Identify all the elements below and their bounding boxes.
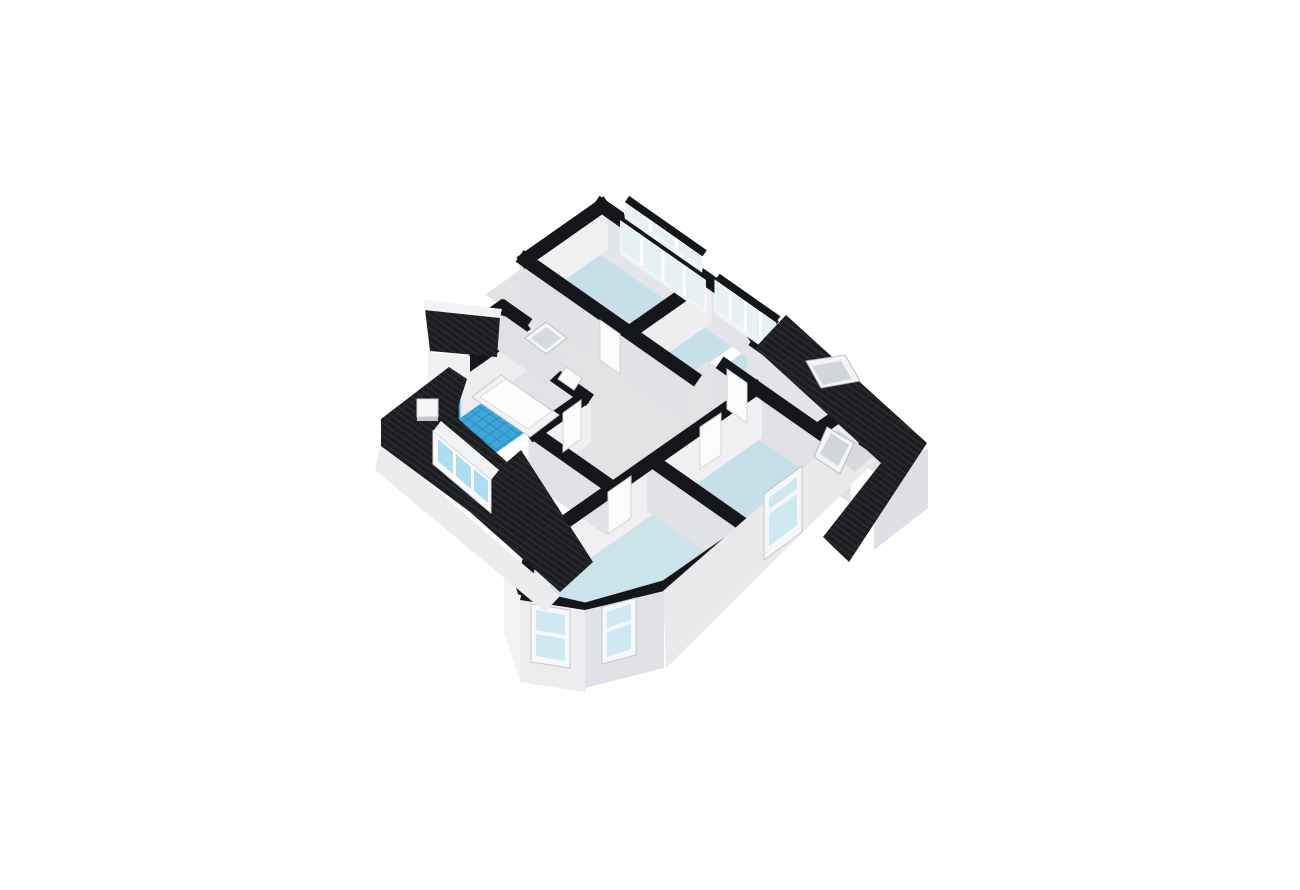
window-ribbon-room2-mullion — [759, 312, 762, 342]
window-ribbon-room2-mullion — [729, 291, 732, 321]
floorplan-canvas — [0, 0, 1300, 890]
roof-vent-box — [417, 399, 438, 417]
window-ribbon-room2-mullion — [744, 302, 747, 332]
parapet-band-mullion — [675, 239, 678, 251]
floorplan-3d-render — [0, 0, 1300, 890]
parapet-band-mullion — [649, 221, 652, 233]
window-ribbon-bed1-mullion — [662, 251, 665, 281]
window-ribbon-bed1-mullion — [683, 266, 686, 296]
roof-vent-side — [417, 417, 438, 421]
window-ribbon-bed1-mullion — [640, 236, 643, 266]
